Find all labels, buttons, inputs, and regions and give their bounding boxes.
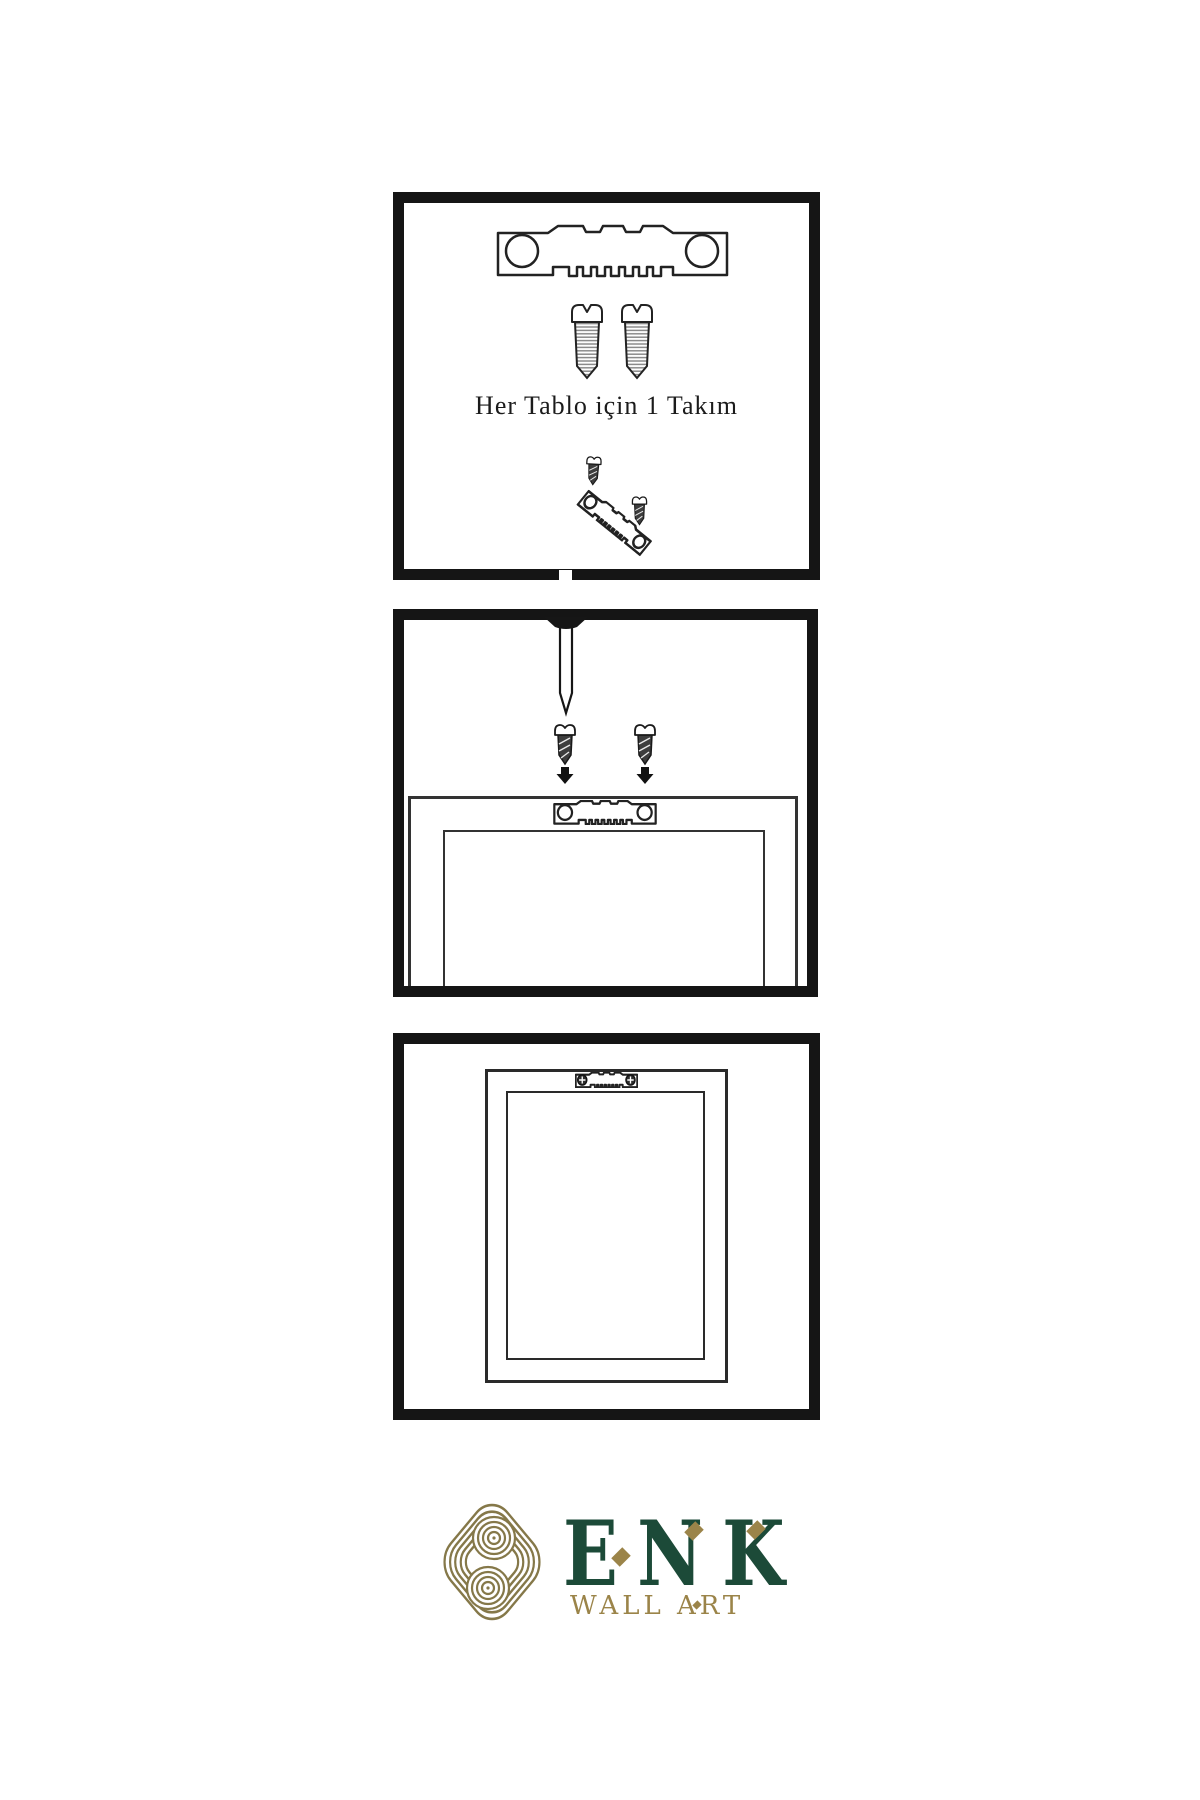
down-arrow-icon: [636, 767, 654, 784]
brand-name: ENK: [563, 1509, 804, 1599]
border-gap-artifact: [559, 570, 572, 580]
sawtooth-hanger-on-frame-icon: [553, 800, 657, 825]
sawtooth-hanger-installed-icon: [575, 1072, 638, 1088]
hung-frame-inner: [506, 1091, 705, 1360]
brand-tagline: WALL ART: [570, 1593, 744, 1619]
screw-icon: [619, 302, 655, 380]
screw-small-icon: [631, 494, 648, 527]
frame-back-inner: [443, 830, 765, 986]
sawtooth-hanger-icon: [495, 224, 730, 278]
screw-icon: [569, 302, 605, 380]
screw-icon: [553, 722, 577, 766]
screw-angled-icon: [584, 454, 603, 488]
step1-caption: Her Tablo için 1 Takım: [393, 391, 820, 421]
wall-nail-icon: [544, 617, 588, 717]
instruction-sheet: { "canvas": { "background": "#ffffff", "…: [0, 0, 1200, 1800]
down-arrow-icon: [556, 767, 574, 784]
screw-icon: [633, 722, 657, 766]
knot-logo-icon: [433, 1492, 551, 1632]
